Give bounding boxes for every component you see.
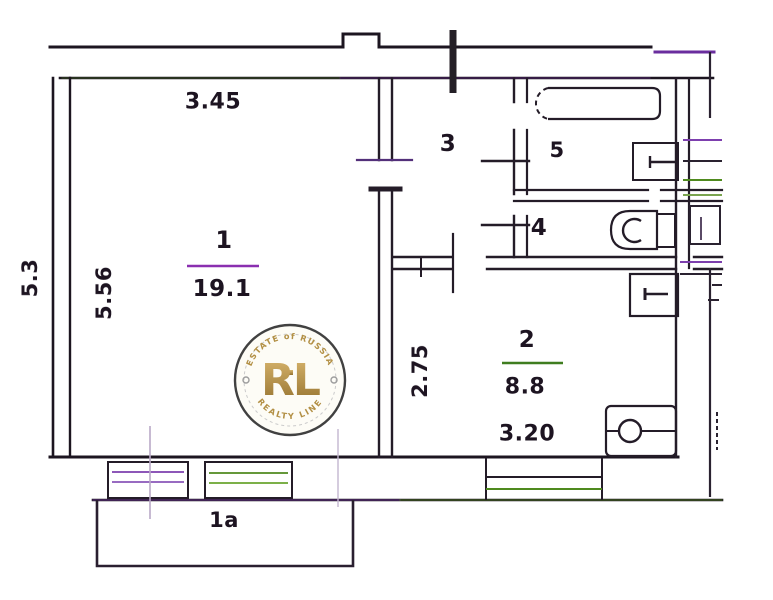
dimension-left-edge: 5.3 [18,259,42,298]
room3-number: 3 [440,131,457,157]
window-room1 [108,462,292,498]
toilet-icon [611,211,675,249]
window-frame [205,462,292,498]
service-shaft [680,52,722,497]
window-kitchen [486,458,602,500]
shaft-box [690,206,720,244]
balcony-label: 1а [209,508,239,532]
bathtub-icon [536,88,660,119]
floor-plan-page: 3.45 1 19.1 5.56 5.3 3 5 4 2 8.8 3.20 2.… [0,0,773,600]
kitchen-sink-icon [630,274,678,316]
room2-number: 2 [519,327,536,353]
toilet-tank [657,214,675,247]
room5-number: 5 [549,138,564,162]
washbasin-icon [633,143,678,180]
room1-number: 1 [215,226,232,254]
room4-number: 4 [531,215,548,241]
watermark-badge: ESTATE of RUSSIA REALTY LINE RL [232,322,348,438]
dimension-room1-width: 3.45 [185,90,241,115]
room1-area: 19.1 [193,276,252,302]
window-frame [108,462,188,498]
watermark-initials: RL [261,355,320,406]
bathtub-cap [536,88,548,119]
dimension-room2-width: 3.20 [499,422,555,447]
dimension-room1-height: 5.56 [92,266,116,320]
stove-icon [606,406,676,456]
dimension-room2-height: 2.75 [408,344,432,398]
toilet-seat [623,219,641,242]
bathtub-body [548,88,660,119]
wall-segment [50,34,651,47]
room2-area: 8.8 [505,375,545,400]
walls-interior [357,79,722,457]
toilet-bowl [611,211,657,249]
